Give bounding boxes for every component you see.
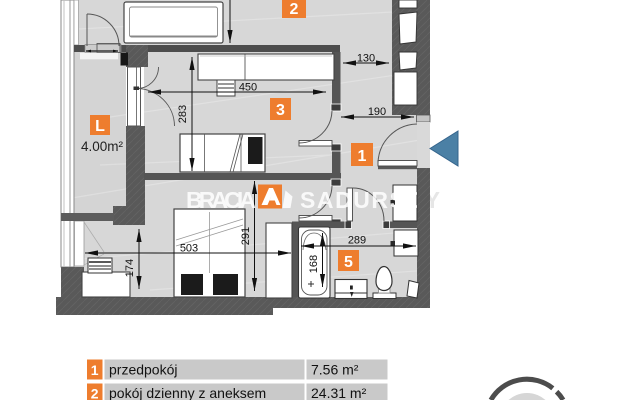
svg-text:283: 283 bbox=[177, 105, 189, 123]
svg-text:168: 168 bbox=[308, 255, 320, 273]
svg-text:L: L bbox=[95, 118, 105, 135]
svg-text:289: 289 bbox=[348, 235, 366, 247]
svg-text:450: 450 bbox=[239, 82, 257, 94]
svg-text:1: 1 bbox=[91, 362, 99, 378]
svg-text:174: 174 bbox=[124, 259, 136, 277]
svg-text:24.31 m²: 24.31 m² bbox=[311, 385, 367, 400]
svg-text:2: 2 bbox=[91, 386, 99, 400]
svg-text:pokój dzienny z aneksem: pokój dzienny z aneksem bbox=[109, 385, 266, 400]
svg-text:190: 190 bbox=[368, 106, 386, 118]
svg-text:przedpokój: przedpokój bbox=[109, 362, 178, 378]
svg-text:130: 130 bbox=[357, 53, 375, 65]
svg-text:2: 2 bbox=[290, 1, 299, 18]
svg-text:1: 1 bbox=[358, 148, 367, 165]
svg-text:BRACIA: BRACIA bbox=[186, 187, 256, 213]
svg-text:4.00m²: 4.00m² bbox=[81, 139, 124, 154]
svg-text:291: 291 bbox=[240, 227, 252, 245]
svg-text:3: 3 bbox=[276, 102, 285, 119]
svg-text:5: 5 bbox=[344, 254, 353, 271]
svg-text:7.56 m²: 7.56 m² bbox=[311, 362, 359, 378]
svg-text:503: 503 bbox=[180, 243, 198, 255]
